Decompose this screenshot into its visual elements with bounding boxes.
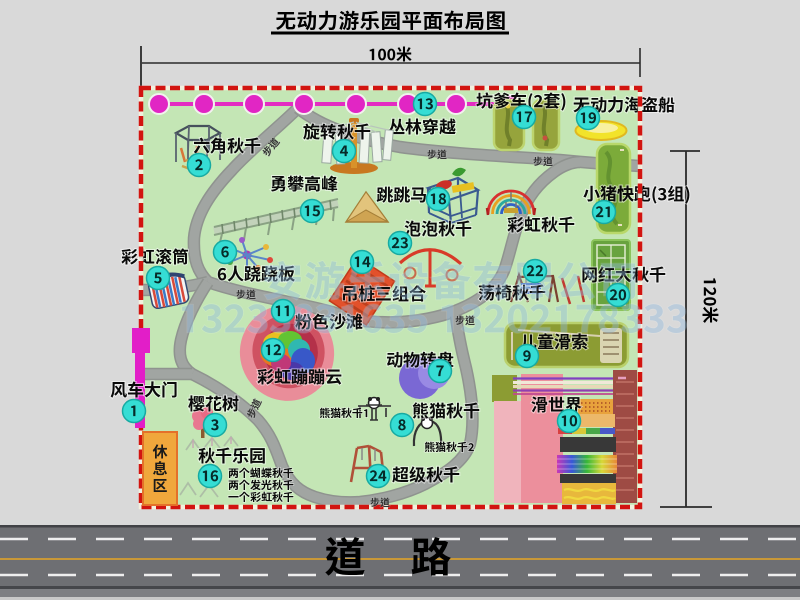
svg-text:14: 14: [353, 253, 371, 271]
svg-text:熊猫秋千: 熊猫秋千: [412, 401, 480, 421]
svg-text:樱花树: 樱花树: [187, 394, 239, 414]
svg-text:20: 20: [609, 286, 627, 304]
svg-text:旋转秋千: 旋转秋千: [303, 122, 371, 142]
svg-text:息: 息: [152, 460, 168, 478]
svg-text:15: 15: [303, 202, 321, 220]
svg-text:步道: 步道: [455, 315, 475, 327]
svg-text:2: 2: [195, 156, 204, 174]
svg-text:道: 道: [325, 532, 366, 581]
svg-text:一个彩虹秋千: 一个彩虹秋千: [228, 491, 294, 504]
svg-text:1: 1: [130, 402, 139, 420]
svg-text:18: 18: [429, 190, 447, 208]
svg-text:步道: 步道: [370, 497, 390, 509]
svg-text:21: 21: [595, 203, 613, 221]
svg-text:风车大门: 风车大门: [110, 380, 178, 400]
svg-text:步道: 步道: [427, 149, 447, 161]
svg-text:丛林穿越: 丛林穿越: [388, 117, 456, 137]
svg-text:120米: 120米: [700, 277, 720, 324]
svg-text:勇攀高峰: 勇攀高峰: [270, 174, 339, 194]
svg-text:彩虹蹦蹦云: 彩虹蹦蹦云: [256, 367, 342, 387]
svg-text:17: 17: [515, 108, 533, 126]
svg-text:休: 休: [151, 443, 167, 461]
svg-text:熊猫秋千2: 熊猫秋千2: [424, 441, 474, 454]
svg-text:5: 5: [154, 269, 163, 287]
svg-text:9: 9: [523, 347, 532, 365]
svg-text:步道: 步道: [533, 156, 553, 168]
svg-text:23: 23: [391, 234, 409, 252]
svg-text:路: 路: [411, 532, 452, 581]
svg-text:11: 11: [274, 302, 292, 320]
svg-text:19: 19: [579, 109, 597, 127]
svg-text:超级秋千: 超级秋千: [392, 465, 460, 485]
svg-text:13: 13: [416, 95, 434, 113]
svg-text:无动力游乐园平面布局图: 无动力游乐园平面布局图: [276, 9, 507, 33]
svg-text:跳跳马: 跳跳马: [376, 185, 427, 205]
svg-text:8: 8: [398, 416, 407, 434]
svg-text:步道: 步道: [236, 289, 256, 301]
svg-text:熊猫秋千1: 熊猫秋千1: [319, 407, 369, 420]
svg-text:7: 7: [436, 362, 445, 380]
svg-text:16: 16: [201, 467, 219, 485]
svg-text:6: 6: [221, 243, 230, 261]
svg-text:彩虹滚筒: 彩虹滚筒: [120, 247, 189, 267]
svg-text:区: 区: [152, 477, 167, 495]
svg-text:彩虹秋千: 彩虹秋千: [506, 215, 575, 235]
svg-text:12: 12: [264, 341, 282, 359]
svg-text:10: 10: [560, 412, 578, 430]
svg-text:4: 4: [340, 142, 349, 160]
svg-text:3: 3: [211, 416, 220, 434]
svg-text:六角秋千: 六角秋千: [193, 136, 261, 156]
svg-text:100米: 100米: [368, 45, 412, 64]
svg-text:24: 24: [369, 467, 387, 485]
svg-text:泡泡秋千: 泡泡秋千: [404, 219, 472, 239]
svg-text:22: 22: [526, 262, 544, 280]
svg-text:秋千乐园: 秋千乐园: [197, 446, 266, 466]
